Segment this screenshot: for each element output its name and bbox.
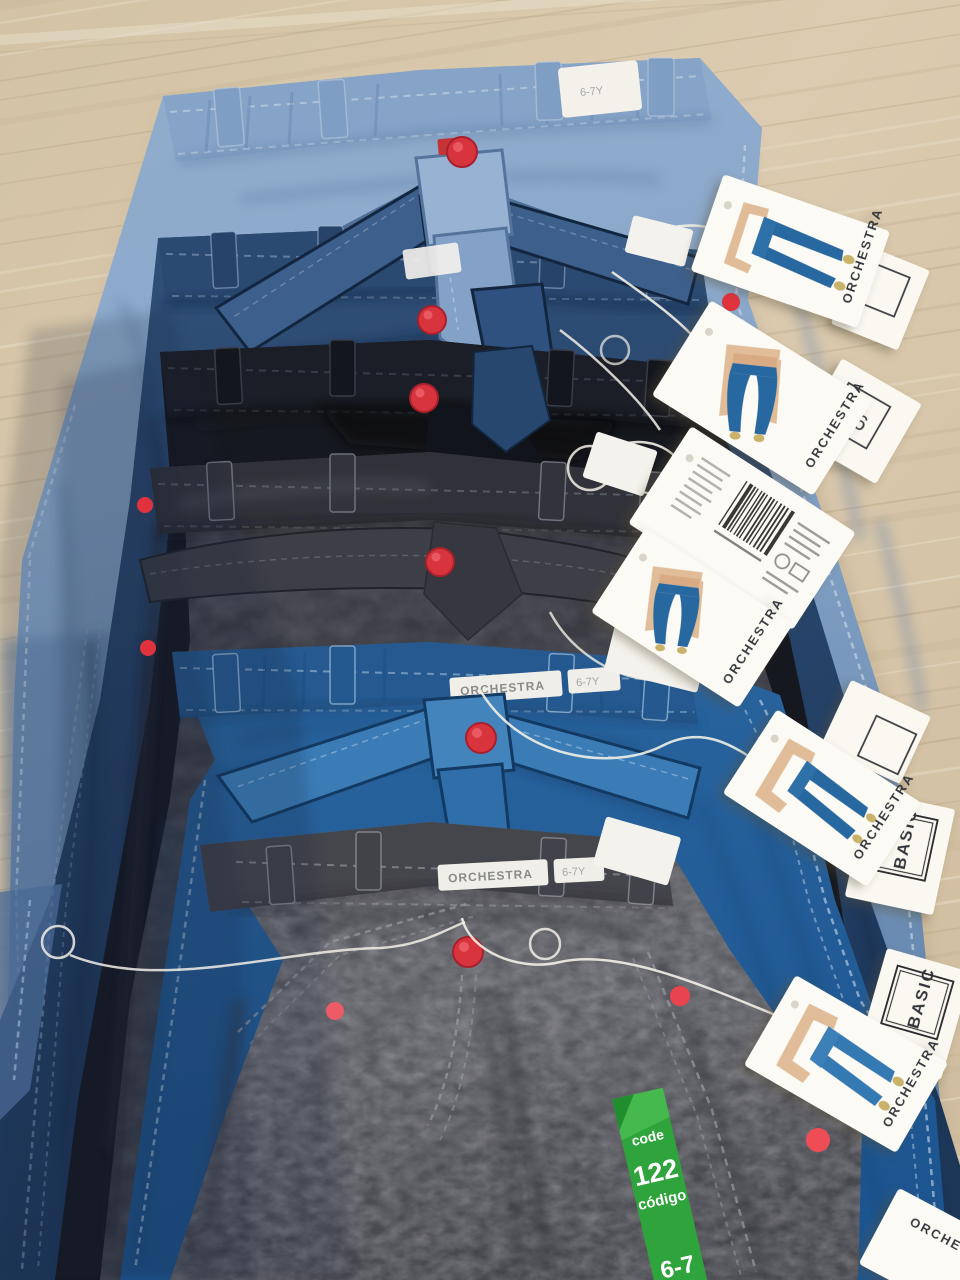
svg-text:6-7Y: 6-7Y — [562, 866, 586, 879]
svg-text:6-7Y: 6-7Y — [579, 85, 604, 99]
svg-text:6-7Y: 6-7Y — [576, 676, 601, 690]
